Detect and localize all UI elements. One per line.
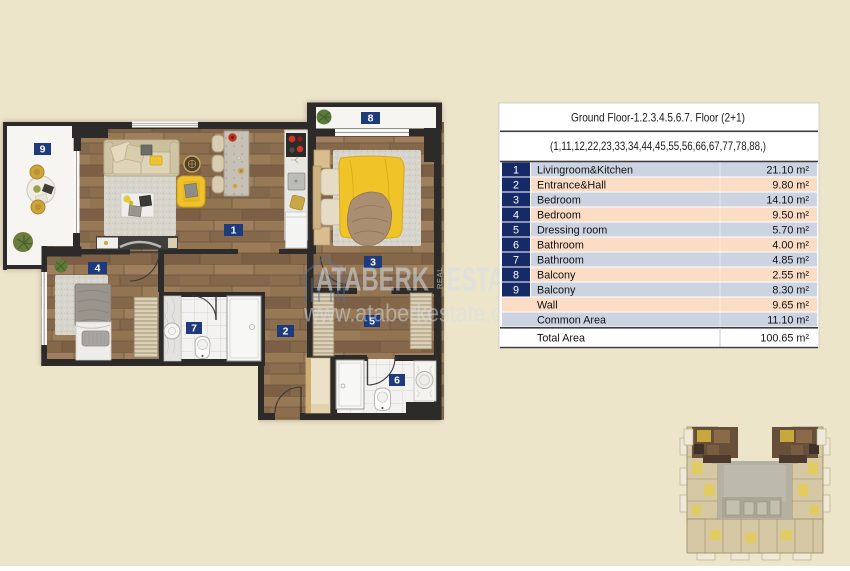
svg-text:5: 5 [513, 225, 519, 237]
svg-text:8: 8 [368, 113, 374, 125]
svg-text:11.10 m²: 11.10 m² [767, 315, 809, 327]
svg-text:4.85 m²: 4.85 m² [772, 255, 809, 267]
svg-text:5.70 m²: 5.70 m² [772, 225, 809, 237]
svg-text:2: 2 [513, 180, 519, 192]
svg-text:4: 4 [513, 210, 519, 222]
svg-text:Bedroom: Bedroom [537, 210, 581, 222]
svg-text:9: 9 [513, 285, 519, 297]
svg-text:3: 3 [513, 195, 519, 207]
svg-text:2.55 m²: 2.55 m² [772, 270, 809, 282]
svg-text:4: 4 [95, 263, 101, 275]
svg-text:(1,11,12,22,23,33,34,44,45,55,: (1,11,12,22,23,33,34,44,45,55,56,66,67,7… [550, 139, 766, 153]
svg-text:Wall: Wall [537, 300, 558, 312]
svg-text:Livingroom&Kitchen: Livingroom&Kitchen [537, 165, 633, 177]
svg-text:1: 1 [513, 165, 519, 177]
svg-text:Balcony: Balcony [537, 285, 576, 297]
svg-text:6: 6 [394, 375, 400, 387]
svg-text:6: 6 [513, 240, 519, 252]
svg-text:ATABERK: ATABERK [316, 261, 429, 298]
svg-text:100.65 m²: 100.65 m² [760, 333, 809, 345]
svg-text:Bathroom: Bathroom [537, 255, 584, 267]
svg-text:www.ataberkestate.com: www.ataberkestate.com [303, 300, 532, 328]
svg-text:Dressing room: Dressing room [537, 225, 607, 237]
svg-text:7: 7 [191, 323, 197, 335]
svg-text:2: 2 [283, 326, 289, 338]
svg-text:14.10 m²: 14.10 m² [766, 195, 809, 207]
svg-text:9: 9 [40, 144, 46, 156]
svg-text:Bedroom: Bedroom [537, 195, 581, 207]
svg-text:9.50 m²: 9.50 m² [772, 210, 809, 222]
svg-text:9.65 m²: 9.65 m² [772, 300, 809, 312]
svg-text:7: 7 [513, 255, 519, 267]
svg-text:8.30 m²: 8.30 m² [772, 285, 809, 297]
svg-text:4.00 m²: 4.00 m² [772, 240, 809, 252]
svg-text:21.10 m²: 21.10 m² [766, 165, 809, 177]
svg-text:REAL: REAL [435, 267, 444, 289]
svg-text:Balcony: Balcony [537, 270, 576, 282]
svg-text:Common Area: Common Area [537, 315, 606, 327]
svg-text:Entrance&Hall: Entrance&Hall [537, 180, 606, 192]
svg-text:Ground Floor-1.2.3.4.5.6.7. Fl: Ground Floor-1.2.3.4.5.6.7. Floor (2+1) [571, 111, 745, 125]
svg-text:1: 1 [231, 225, 237, 237]
svg-text:9.80 m²: 9.80 m² [772, 180, 809, 192]
svg-text:Bathroom: Bathroom [537, 240, 584, 252]
svg-text:Total Area: Total Area [537, 333, 585, 345]
svg-text:8: 8 [513, 270, 519, 282]
